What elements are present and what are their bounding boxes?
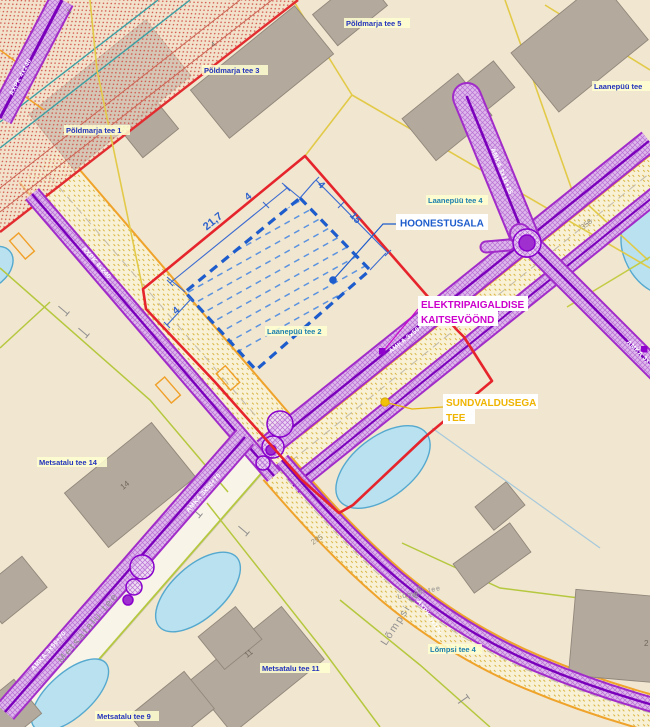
address-label: Põldmarja tee 5	[346, 19, 401, 28]
cable-marker-square	[379, 348, 386, 355]
address-label: Laanepüü tee 2	[267, 327, 322, 336]
map-svg: AMKA 3x50+70 AMKA 3x16+25 AXPK 4x240 AMK…	[0, 0, 650, 727]
building	[568, 589, 650, 682]
callout-hoonestusala-text: HOONESTUSALA	[400, 219, 484, 230]
address-label: Metsatalu tee 9	[97, 712, 151, 721]
address-label: Laanepüü tee	[594, 82, 642, 91]
callout-hoonestusala: HOONESTUSALA	[396, 214, 488, 230]
address-label: Lõmpsi tee 4	[430, 645, 477, 654]
address-label: Laanepüü tee 4	[428, 196, 483, 205]
plan-map-canvas[interactable]: AMKA 3x50+70 AMKA 3x16+25 AXPK 4x240 AMK…	[0, 0, 650, 727]
address-label: Põldmarja tee 1	[66, 126, 121, 135]
sundvaldus-marker-dot	[381, 398, 389, 406]
callout-sundvaldus-line1: SUNDVALDUSEGA	[446, 398, 536, 409]
callout-kaitsevoond-line2: KAITSEVÖÖND	[421, 313, 494, 326]
building-number: 2	[644, 639, 649, 648]
address-label: Põldmarja tee 3	[204, 66, 259, 75]
address-label: Metsatalu tee 11	[262, 664, 320, 673]
callout-sundvaldus-line2: TEE	[446, 413, 466, 424]
callout-kaitsevoond-line1: ELEKTRIPAIGALDISE	[421, 300, 524, 311]
address-label: Metsatalu tee 14	[39, 458, 98, 467]
